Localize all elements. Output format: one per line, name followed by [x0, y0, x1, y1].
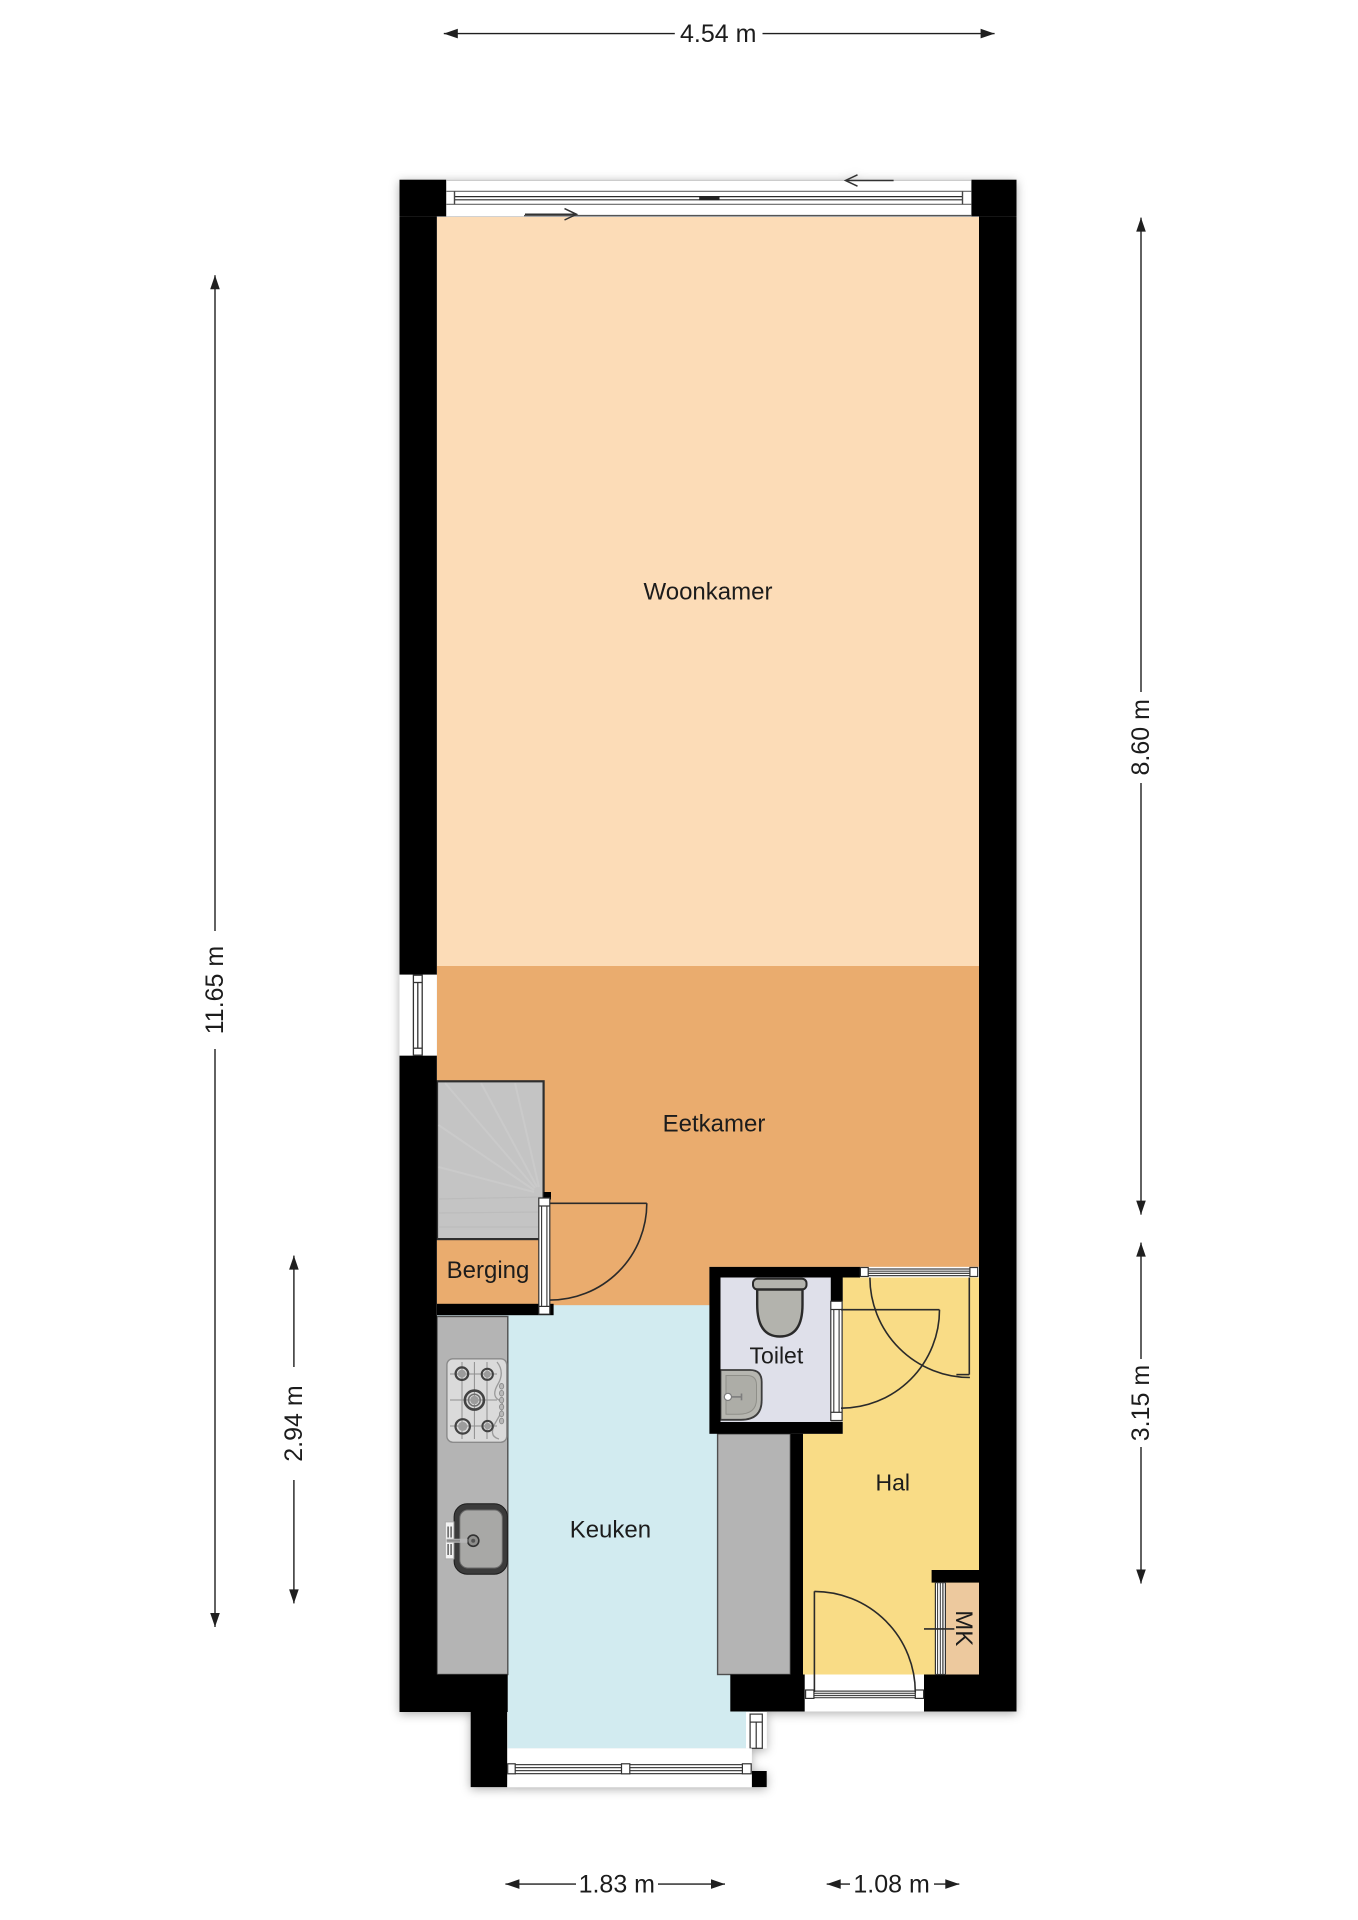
svg-text:MK: MK — [950, 1610, 977, 1646]
svg-text:Eetkamer: Eetkamer — [663, 1111, 766, 1138]
svg-text:1.83 m: 1.83 m — [579, 1871, 655, 1899]
svg-text:11.65 m: 11.65 m — [201, 946, 229, 1034]
svg-text:Woonkamer: Woonkamer — [644, 579, 773, 606]
svg-text:Keuken: Keuken — [570, 1517, 651, 1544]
svg-text:Berging: Berging — [447, 1257, 530, 1284]
svg-text:8.60 m: 8.60 m — [1127, 699, 1155, 775]
svg-text:4.54 m: 4.54 m — [680, 20, 756, 48]
svg-text:1.08 m: 1.08 m — [853, 1871, 929, 1899]
svg-text:Hal: Hal — [876, 1470, 911, 1496]
svg-text:3.15 m: 3.15 m — [1127, 1365, 1155, 1441]
svg-text:2.94 m: 2.94 m — [280, 1385, 308, 1461]
svg-text:Toilet: Toilet — [750, 1343, 804, 1369]
